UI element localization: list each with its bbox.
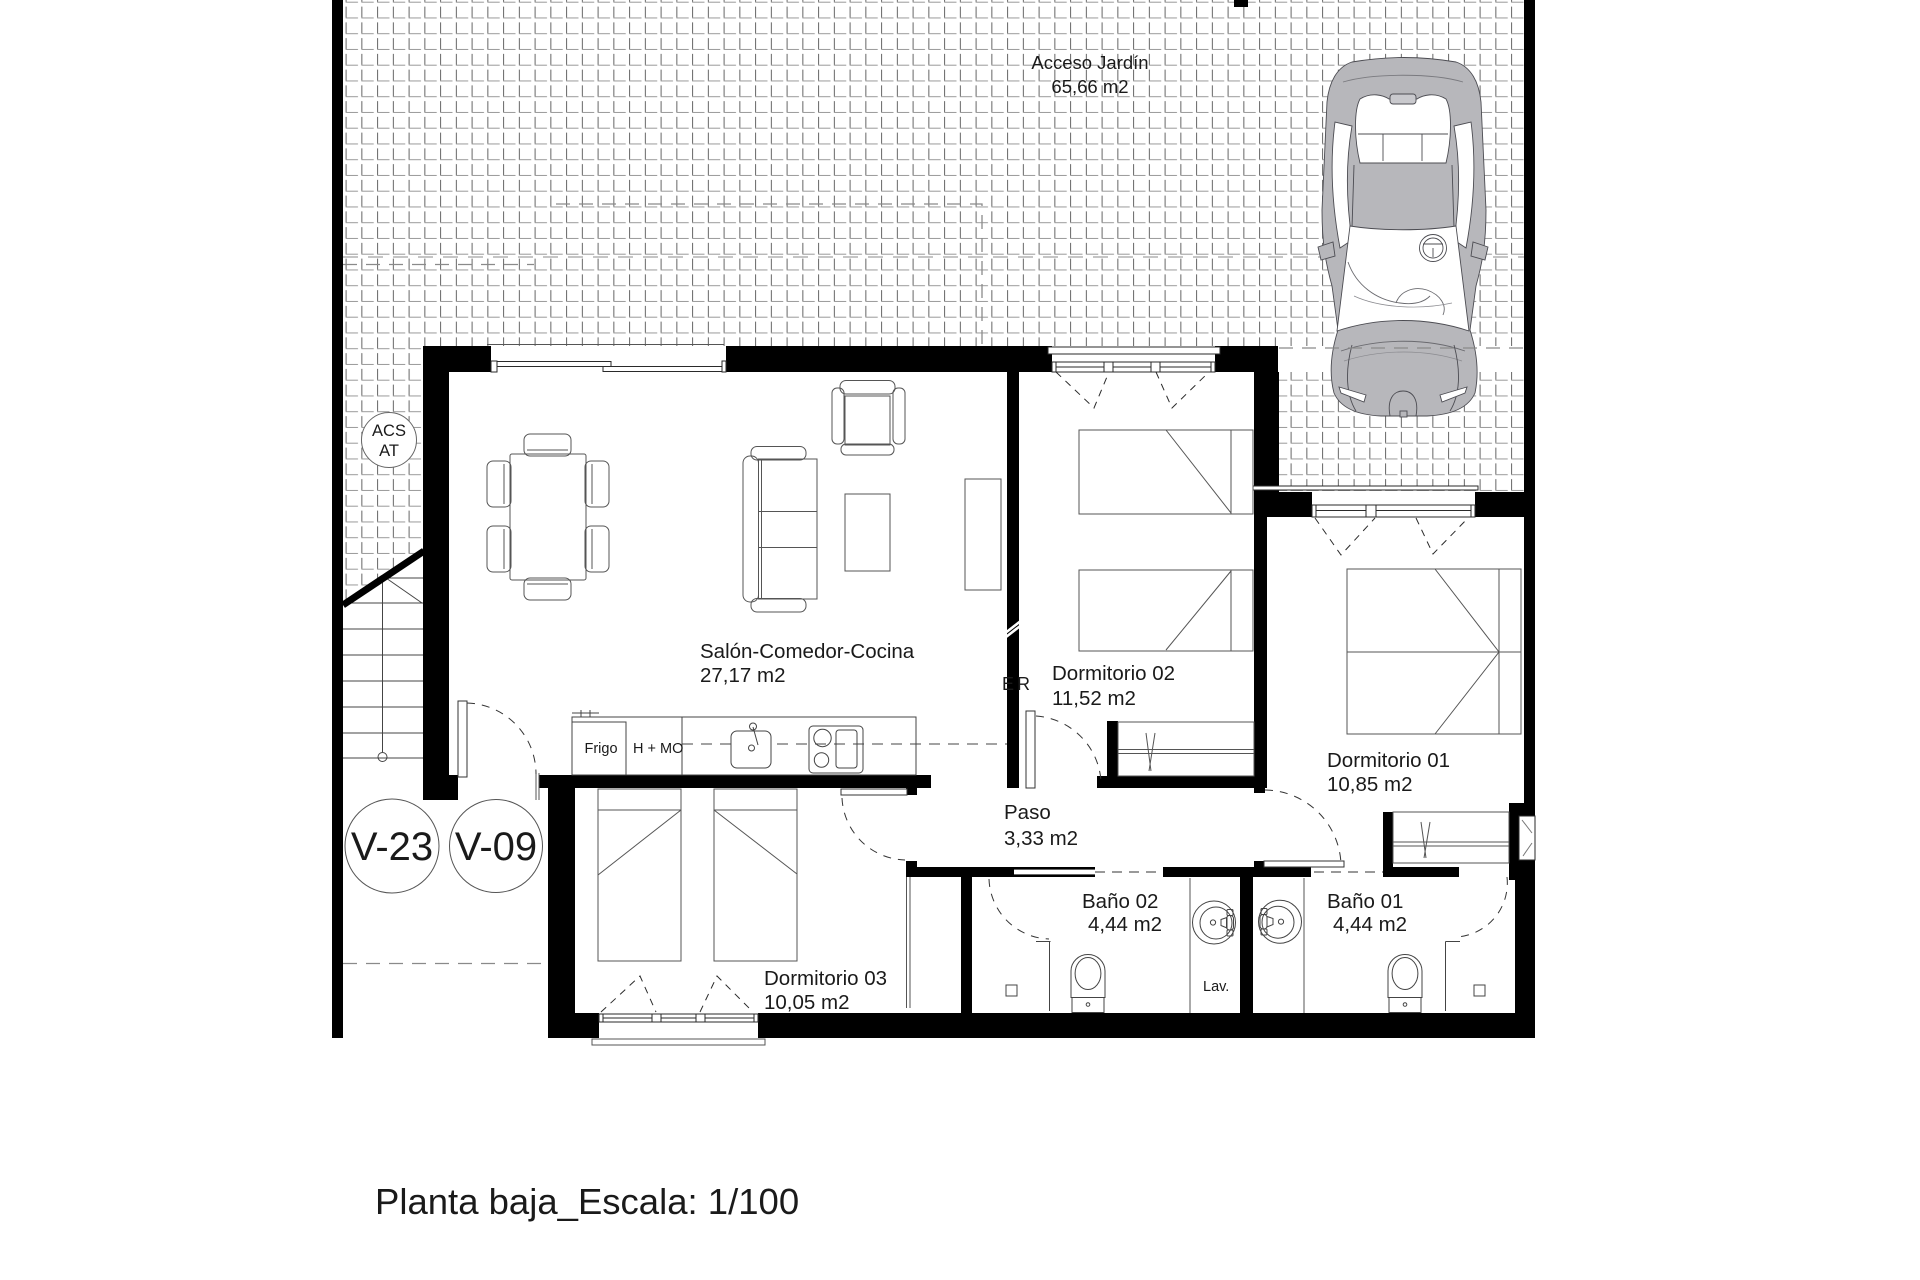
svg-text:Paso: Paso — [1004, 801, 1051, 824]
svg-text:AT: AT — [379, 442, 399, 460]
svg-text:Frigo: Frigo — [584, 741, 617, 757]
svg-text:10,85 m2: 10,85 m2 — [1327, 773, 1412, 796]
svg-text:Lav.: Lav. — [1203, 979, 1229, 995]
svg-text:10,05 m2: 10,05 m2 — [764, 991, 849, 1014]
svg-text:V-23: V-23 — [351, 825, 433, 869]
svg-text:Dormitorio 03: Dormitorio 03 — [764, 967, 887, 990]
svg-text:11,52 m2: 11,52 m2 — [1052, 687, 1136, 710]
svg-text:65,66 m2: 65,66 m2 — [1051, 76, 1128, 97]
svg-text:Acceso Jardín: Acceso Jardín — [1031, 52, 1148, 73]
svg-text:H + MO: H + MO — [633, 741, 683, 757]
svg-text:Baño 02: Baño 02 — [1082, 890, 1158, 913]
svg-text:4,44 m2: 4,44 m2 — [1088, 913, 1162, 936]
svg-text:27,17 m2: 27,17 m2 — [700, 664, 785, 687]
svg-text:Dormitorio 02: Dormitorio 02 — [1052, 662, 1175, 685]
svg-text:Salón-Comedor-Cocina: Salón-Comedor-Cocina — [700, 640, 915, 663]
svg-text:Dormitorio 01: Dormitorio 01 — [1327, 749, 1450, 772]
svg-text:V-09: V-09 — [455, 825, 537, 869]
svg-text:ER: ER — [1002, 674, 1033, 694]
svg-text:3,33 m2: 3,33 m2 — [1004, 827, 1078, 850]
svg-text:ACS: ACS — [372, 422, 406, 440]
svg-text:Planta baja_Escala: 1/100: Planta baja_Escala: 1/100 — [375, 1181, 799, 1222]
svg-text:4,44 m2: 4,44 m2 — [1333, 913, 1407, 936]
svg-text:Baño 01: Baño 01 — [1327, 890, 1403, 913]
